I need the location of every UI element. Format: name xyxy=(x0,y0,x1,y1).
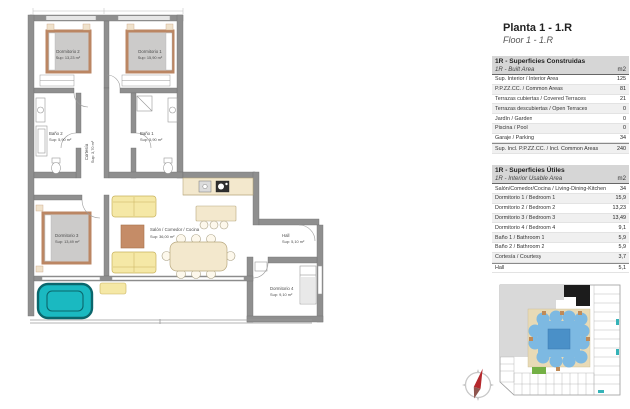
svg-text:Sup: 36,00 m²: Sup: 36,00 m² xyxy=(150,234,175,239)
row-value: 125 xyxy=(617,76,626,82)
label-dormitorio1: Dormitorio 1 xyxy=(138,49,162,54)
kitchen-counter xyxy=(183,178,253,195)
built-area-table-header: 1R - Superficies Construidas 1R - Built … xyxy=(492,56,629,75)
compass-north-icon xyxy=(454,361,502,409)
terrace-bench xyxy=(100,283,126,294)
row-value: 34 xyxy=(620,186,626,192)
table-row: Dormitorio 4 / Bedroom 4 9,1 xyxy=(492,223,629,233)
row-value: 0 xyxy=(623,125,626,131)
table-row: Sup. Interior / Interior Area 125 xyxy=(492,75,629,85)
svg-text:Sup: 13,23 m²: Sup: 13,23 m² xyxy=(56,55,81,60)
label-cortesia: Cortesía xyxy=(84,143,89,160)
table-row: Baño 1 / Bathroom 1 5,9 xyxy=(492,233,629,243)
row-value: 5,9 xyxy=(619,235,627,241)
row-value: 0 xyxy=(623,116,626,122)
table-row: Terrazas cubiertas / Covered Terraces 21 xyxy=(492,95,629,105)
svg-text:Sup: 13,49 m²: Sup: 13,49 m² xyxy=(55,239,80,244)
label-dormitorio3: Dormitorio 3 xyxy=(55,233,79,238)
row-value: 13,23 xyxy=(613,205,627,211)
svg-text:Sup: 3,70 m²: Sup: 3,70 m² xyxy=(90,140,95,163)
svg-text:Sup: 5,90 m²: Sup: 5,90 m² xyxy=(140,137,163,142)
usable-area-rows: Salón/Comedor/Cocina / Living-Dining-Kit… xyxy=(492,184,629,273)
row-value: 15,9 xyxy=(616,195,627,201)
label-bano1: Baño 1 xyxy=(140,131,154,136)
page-title: Planta 1 - 1.R xyxy=(492,22,629,34)
dimension-lines xyxy=(33,8,183,14)
info-panel: Planta 1 - 1.R Floor 1 - 1.R 1R - Superf… xyxy=(492,22,629,273)
green-lawn xyxy=(532,367,546,374)
row-value: 34 xyxy=(620,135,626,141)
label-hall: Hall xyxy=(282,233,289,238)
svg-text:Sup: 9,10 m²: Sup: 9,10 m² xyxy=(270,292,293,297)
built-area-table: 1R - Superficies Construidas 1R - Built … xyxy=(492,56,629,154)
svg-text:Sup: 15,90 m²: Sup: 15,90 m² xyxy=(138,55,163,60)
table-title-es: 1R - Superficies Construidas xyxy=(495,58,626,65)
label-dormitorio2: Dormitorio 2 xyxy=(56,49,80,54)
svg-text:Sup: 5,10 m²: Sup: 5,10 m² xyxy=(282,239,305,244)
dining-table xyxy=(162,235,235,279)
floorplan-page: Dormitorio 2 Sup: 13,23 m² Dormitorio 1 … xyxy=(0,0,630,409)
row-label: Cortesía / Courtesy xyxy=(495,254,541,260)
table-unit: m2 xyxy=(618,66,626,73)
row-value: 5,9 xyxy=(619,244,627,250)
sofa-top xyxy=(112,196,156,217)
table-row: Hall 5,1 xyxy=(492,263,629,274)
row-value: 5,1 xyxy=(619,265,627,271)
table-row: P.P.ZZ.CC. / Common Areas 81 xyxy=(492,85,629,95)
row-label: Salón/Comedor/Cocina / Living-Dining-Kit… xyxy=(495,186,606,192)
courtyard xyxy=(528,309,590,374)
table-title-es: 1R - Superficies Útiles xyxy=(495,167,626,174)
row-label: Jardín / Garden xyxy=(495,116,532,122)
usable-area-table-header: 1R - Superficies Útiles 1R - Interior Us… xyxy=(492,165,629,184)
table-unit: m2 xyxy=(618,175,626,182)
table-row: Salón/Comedor/Cocina / Living-Dining-Kit… xyxy=(492,184,629,194)
row-value: 81 xyxy=(620,86,626,92)
svg-text:Sup: 5,90 m²: Sup: 5,90 m² xyxy=(49,137,72,142)
kitchen-island xyxy=(196,206,236,229)
bed-dormitorio1 xyxy=(127,24,173,72)
row-value: 13,49 xyxy=(613,215,627,221)
table-row: Terrazas descubiertas / Open Terraces 0 xyxy=(492,104,629,114)
row-label: Dormitorio 4 / Bedroom 4 xyxy=(495,225,555,231)
page-subtitle: Floor 1 - 1.R xyxy=(492,35,629,45)
jacuzzi-pool xyxy=(38,284,92,318)
row-value: 21 xyxy=(620,96,626,102)
table-row: Garaje / Parking 34 xyxy=(492,134,629,144)
row-label: Sup. Interior / Interior Area xyxy=(495,76,558,82)
row-label: Baño 2 / Bathroom 2 xyxy=(495,244,544,250)
row-value: 9,1 xyxy=(619,225,627,231)
table-row: Sup. Incl. P.P.ZZ.CC. / Incl. Common Are… xyxy=(492,143,629,154)
table-row: Baño 2 / Bathroom 2 5,9 xyxy=(492,243,629,253)
label-salon: Salón / Comedor / Cocina xyxy=(150,227,200,232)
row-label: Dormitorio 3 / Bedroom 3 xyxy=(495,215,555,221)
sofa-bottom xyxy=(112,252,156,273)
table-row: Dormitorio 1 / Bedroom 1 15,9 xyxy=(492,194,629,204)
table-row: Dormitorio 2 / Bedroom 2 13,23 xyxy=(492,204,629,214)
row-value: 3,7 xyxy=(619,254,627,260)
table-title-en: 1R - Interior Usable Area xyxy=(495,175,562,182)
row-label: Dormitorio 2 / Bedroom 2 xyxy=(495,205,555,211)
label-bano2: Baño 2 xyxy=(49,131,63,136)
bed-dormitorio4 xyxy=(255,262,316,304)
row-value: 240 xyxy=(617,146,626,152)
built-area-rows: Sup. Interior / Interior Area 125 P.P.ZZ… xyxy=(492,75,629,154)
row-label: P.P.ZZ.CC. / Common Areas xyxy=(495,86,563,92)
row-label: Baño 1 / Bathroom 1 xyxy=(495,235,544,241)
row-label: Terrazas descubiertas / Open Terraces xyxy=(495,106,587,112)
table-title-en: 1R - Built Area xyxy=(495,66,534,73)
row-label: Garaje / Parking xyxy=(495,135,534,141)
floor-plan: Dormitorio 2 Sup: 13,23 m² Dormitorio 1 … xyxy=(0,0,345,345)
site-plan-minimap xyxy=(498,283,622,399)
row-label: Hall xyxy=(495,265,504,271)
rug xyxy=(121,225,144,248)
row-label: Terrazas cubiertas / Covered Terraces xyxy=(495,96,586,102)
table-row: Jardín / Garden 0 xyxy=(492,114,629,124)
row-label: Dormitorio 1 / Bedroom 1 xyxy=(495,195,555,201)
usable-area-table: 1R - Superficies Útiles 1R - Interior Us… xyxy=(492,165,629,273)
row-label: Piscina / Pool xyxy=(495,125,528,131)
row-label: Sup. Incl. P.P.ZZ.CC. / Incl. Common Are… xyxy=(495,146,598,152)
label-dormitorio4: Dormitorio 4 xyxy=(270,286,294,291)
table-row: Cortesía / Courtesy 3,7 xyxy=(492,253,629,263)
bed-dormitorio2 xyxy=(47,24,90,72)
central-pool xyxy=(548,329,570,349)
table-row: Piscina / Pool 0 xyxy=(492,124,629,134)
table-row: Dormitorio 3 / Bedroom 3 13,49 xyxy=(492,214,629,224)
row-value: 0 xyxy=(623,106,626,112)
